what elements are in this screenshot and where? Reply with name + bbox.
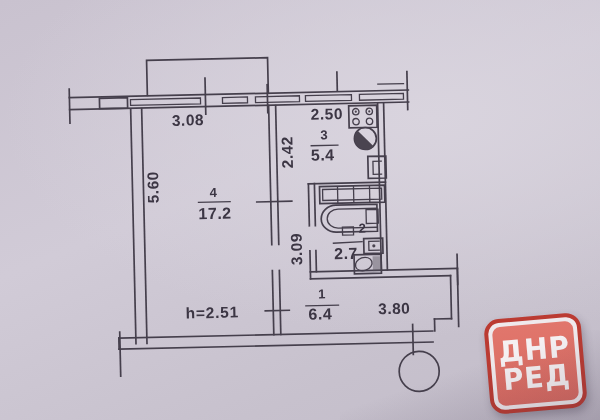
logo-line-2: РЕД (502, 360, 572, 395)
room-living-divider (198, 202, 231, 203)
exterior-wall-left (131, 109, 147, 344)
vent-shaft-circle (399, 351, 440, 392)
kitchen-cabinet (368, 156, 386, 178)
room-bathroom-divider (333, 242, 363, 244)
bathtub (321, 204, 379, 235)
room-hall-number: 1 (318, 286, 326, 301)
room-living-number: 4 (210, 185, 218, 200)
exterior-wall-top (69, 71, 409, 124)
stove (349, 105, 377, 128)
dim-living-depth: 5.60 (144, 171, 162, 204)
dim-kitchen-width: 2.50 (311, 105, 344, 123)
kitchen-sink (354, 127, 377, 150)
balcony-outline (147, 58, 269, 96)
room-kitchen-number: 3 (320, 127, 328, 142)
logo-core: ДНР РЕД (492, 321, 580, 407)
agency-logo: ДНР РЕД (483, 312, 588, 415)
scanned-floor-plan-page: 3.08 2.50 2.42 5.60 3.09 3.80 h=2.51 3 5… (0, 0, 600, 420)
logo-ring: ДНР РЕД (487, 316, 583, 410)
dim-corridor-depth: 3.09 (288, 233, 306, 266)
room-living-area: 17.2 (198, 205, 232, 223)
dim-kitchen-depth: 2.42 (278, 136, 296, 169)
dim-top-left: 3.08 (172, 111, 205, 129)
dim-hall-width: 3.80 (378, 300, 411, 318)
ceiling-height-note: h=2.51 (185, 303, 239, 321)
room-kitchen-area: 5.4 (311, 146, 335, 164)
shelf-unit (319, 185, 384, 203)
room-hall-area: 6.4 (308, 305, 332, 323)
room-bathroom-number: 2 (358, 221, 366, 236)
room-bathroom-area: 2.7 (334, 245, 358, 263)
exterior-wall-bottom (119, 324, 434, 376)
